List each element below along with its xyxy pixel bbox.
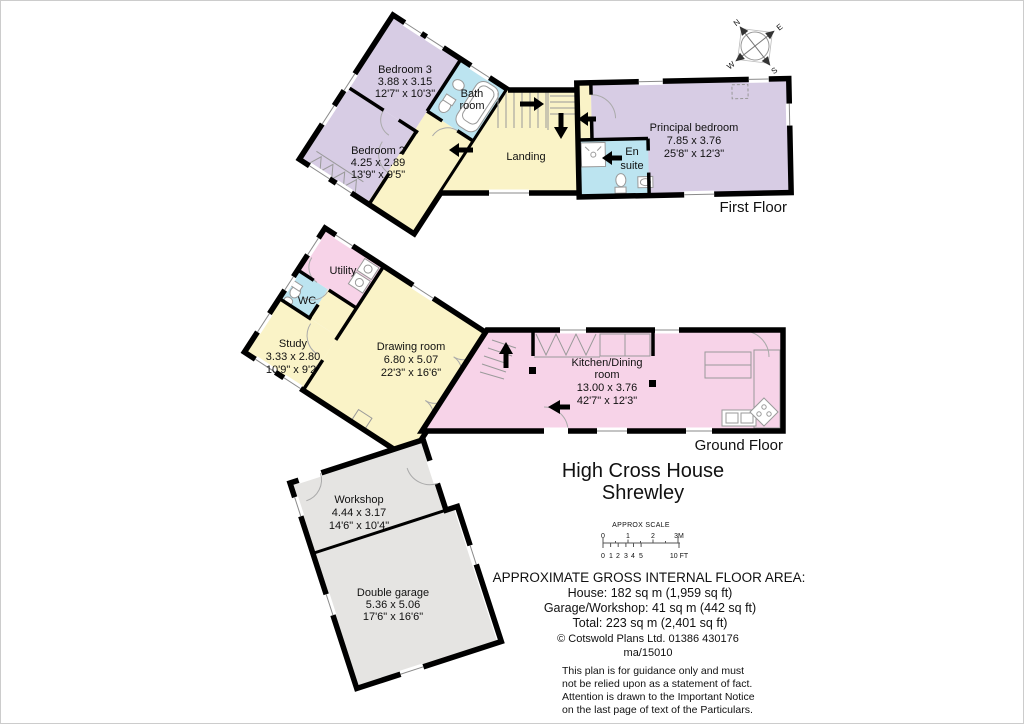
- bedroom2-metric: 4.25 x 2.89: [351, 157, 405, 169]
- wc-name: WC: [298, 295, 316, 307]
- scale-ft1: 1: [609, 553, 613, 560]
- scale-ft4: 4: [631, 553, 635, 560]
- ensuite-line2: suite: [620, 160, 643, 172]
- compass-w-label: W: [725, 59, 737, 71]
- property-title-line2: Shrewley: [602, 482, 684, 504]
- principal-metric: 7.85 x 3.76: [667, 135, 721, 147]
- copyright-line: © Cotswold Plans Ltd. 01386 430176: [557, 633, 739, 645]
- workshop-imperial: 14'6" x 10'4": [329, 520, 389, 532]
- scale-m2: 2: [651, 533, 655, 540]
- area-summary: APPROXIMATE GROSS INTERNAL FLOOR AREA: H…: [493, 570, 806, 659]
- principal-imperial: 25'8" x 12'3": [664, 148, 724, 160]
- drawing-name: Drawing room: [377, 341, 445, 353]
- scale-ft5: 5: [639, 553, 643, 560]
- drawing-imperial: 22'3" x 16'6": [381, 367, 441, 379]
- scale-ft10: 10 FT: [670, 553, 689, 560]
- garage-imperial: 17'6" x 16'6": [363, 611, 423, 623]
- area-house: House: 182 sq m (1,959 sq ft): [568, 586, 733, 600]
- scale-heading: APPROX SCALE: [612, 522, 670, 529]
- scale-ft2: 2: [616, 553, 620, 560]
- bathroom-line1: Bath: [461, 88, 484, 100]
- compass-e-label: E: [775, 22, 785, 32]
- bedroom3-imperial: 12'7" x 10'3": [375, 88, 435, 100]
- principal-name: Principal bedroom: [650, 122, 739, 134]
- bedroom2-name: Bedroom 2: [351, 145, 405, 157]
- drawing-metric: 6.80 x 5.07: [384, 354, 438, 366]
- area-total: Total: 223 sq m (2,401 sq ft): [573, 616, 728, 630]
- area-garage-workshop: Garage/Workshop: 41 sq m (442 sq ft): [544, 601, 756, 615]
- area-heading: APPROXIMATE GROSS INTERNAL FLOOR AREA:: [493, 570, 806, 585]
- first-floor-label: First Floor: [720, 199, 788, 216]
- property-title-line1: High Cross House: [562, 460, 724, 482]
- compass-n-label: N: [732, 17, 742, 28]
- disclaimer-block: This plan is for guidance only and must …: [562, 665, 755, 716]
- study-name: Study: [279, 338, 308, 350]
- scale-bar: APPROX SCALE 0 1 2 3M 0 1 2 3 4 5 10 FT: [601, 522, 689, 560]
- kitchen-imperial: 42'7" x 12'3": [577, 395, 637, 407]
- floor-plan-page: N E S W Bedroom 3 3.88 x 3.15 12'7" x 10…: [0, 0, 1024, 724]
- garage-name: Double garage: [357, 587, 429, 599]
- bedroom2-imperial: 13'9" x 9'5": [351, 169, 405, 181]
- bedroom3-name: Bedroom 3: [378, 64, 432, 76]
- compass-east-arrow: [765, 27, 777, 39]
- bathroom-line2: room: [459, 100, 484, 112]
- study-metric: 3.33 x 2.80: [266, 351, 320, 363]
- ground-floor-label: Ground Floor: [695, 437, 783, 454]
- utility-name: Utility: [330, 265, 357, 277]
- outbuilding-wing: [286, 432, 506, 693]
- floor-plan-canvas: N E S W Bedroom 3 3.88 x 3.15 12'7" x 10…: [0, 0, 1024, 724]
- landing-name: Landing: [506, 151, 545, 163]
- kitchen-line1: Kitchen/Dining: [572, 357, 643, 369]
- kitchen-metric: 13.00 x 3.76: [577, 382, 638, 394]
- kitchen-line2: room: [594, 369, 619, 381]
- disclaimer-line4: on the last page of text of the Particul…: [562, 704, 753, 716]
- disclaimer-line2: not be relied upon as a statement of fac…: [562, 678, 752, 690]
- study-imperial: 10'9" x 9'2": [266, 364, 320, 376]
- ensuite-line1: En: [625, 146, 638, 158]
- scale-m1: 1: [626, 533, 630, 540]
- compass-west-arrow: [733, 53, 745, 65]
- scale-ft0: 0: [601, 553, 605, 560]
- first-floor-bedroom-wing: [294, 10, 509, 237]
- scale-ft3: 3: [624, 553, 628, 560]
- bedroom3-metric: 3.88 x 3.15: [378, 76, 432, 88]
- disclaimer-line1: This plan is for guidance only and must: [562, 665, 744, 677]
- scale-m3: 3M: [674, 533, 684, 540]
- plan-reference: ma/15010: [624, 647, 673, 659]
- compass-s-label: S: [770, 66, 780, 76]
- workshop-name: Workshop: [334, 494, 383, 506]
- garage-metric: 5.36 x 5.06: [366, 599, 420, 611]
- workshop-metric: 4.44 x 3.17: [332, 507, 386, 519]
- disclaimer-line3: Attention is drawn to the Important Noti…: [562, 691, 755, 703]
